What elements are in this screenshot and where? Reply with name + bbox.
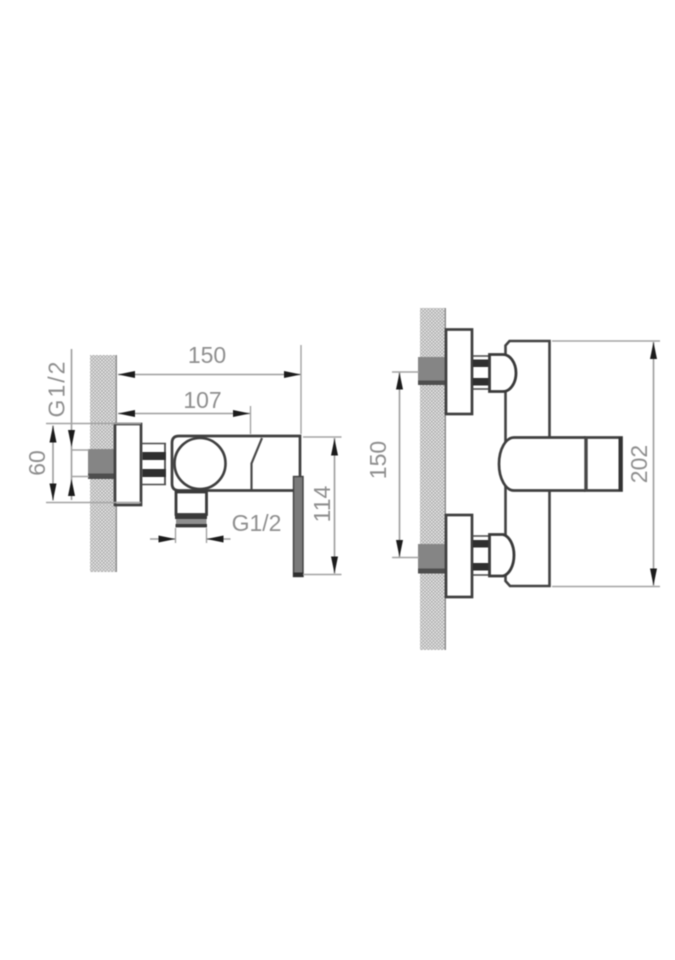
svg-text:150: 150 <box>365 441 391 479</box>
svg-text:G1/2: G1/2 <box>232 510 282 536</box>
svg-text:107: 107 <box>183 387 221 413</box>
svg-text:150: 150 <box>188 342 226 368</box>
svg-text:G1/2: G1/2 <box>44 360 70 418</box>
svg-text:60: 60 <box>24 450 50 476</box>
svg-text:202: 202 <box>626 445 652 483</box>
svg-text:114: 114 <box>309 485 335 522</box>
